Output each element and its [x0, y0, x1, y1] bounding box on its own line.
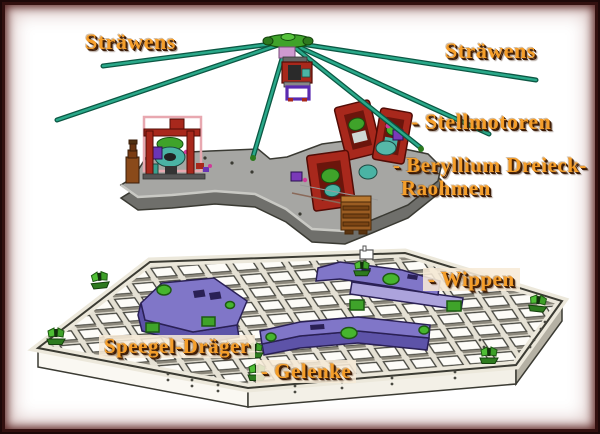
- strut: [250, 42, 287, 161]
- actuator-brown-box: [341, 196, 371, 234]
- label-beryllium-line2: Raohmen: [401, 177, 587, 200]
- hub-pink-block: [279, 47, 295, 58]
- gelenk-clamp: [480, 347, 498, 364]
- diagram-frame: Sträwens Sträwens - Stellmotoren - Beryl…: [0, 0, 600, 434]
- label-beryllium-line1: - Beryllium Dreieck-: [393, 154, 587, 177]
- gelenk-clamp: [47, 328, 65, 345]
- wippe-left-foot-1: [146, 323, 159, 332]
- gelenk-clamp: [90, 271, 110, 289]
- wippe-left-knob: [157, 285, 171, 295]
- wippe-left-hole-1: [193, 290, 206, 299]
- label-gelenke: - Gelenke: [256, 360, 356, 383]
- label-beryllium: - Beryllium Dreieck- Raohmen: [393, 154, 587, 200]
- bottle: [126, 140, 139, 183]
- hub-purple-frame: [287, 87, 309, 99]
- wippe-b-knob: [341, 328, 357, 339]
- wippe-tr-foot-left: [350, 300, 364, 310]
- wippe-left-hole-2: [209, 292, 222, 301]
- motor-base: [143, 174, 205, 179]
- gelenk-clamp: [354, 261, 370, 276]
- label-wippen: - Wippen: [423, 268, 520, 291]
- wippe-left-foot-2: [202, 317, 215, 326]
- label-strawens-right: Sträwens: [445, 39, 536, 62]
- wippe-tr-foot-right: [447, 301, 461, 311]
- label-stellmotoren: - Stellmotoren: [411, 110, 551, 133]
- label-strawens-left: Sträwens: [85, 30, 176, 53]
- wippe-tr-knob: [383, 274, 399, 285]
- white-bracket: [360, 246, 373, 259]
- label-speegel-draeger: Speegel-Dräger: [99, 335, 255, 358]
